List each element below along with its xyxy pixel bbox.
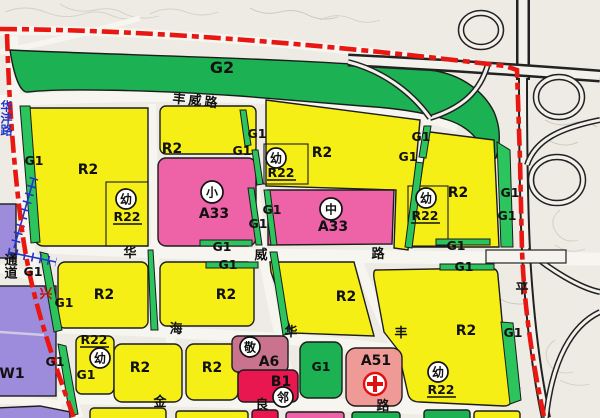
label-g1: G1 xyxy=(233,143,252,158)
road-name-huawei-lu: 路 xyxy=(371,246,385,262)
svg-text:幼: 幼 xyxy=(432,365,444,380)
label-g1: G1 xyxy=(248,126,267,141)
neighborhood-center-mark: 邻 xyxy=(273,387,293,407)
zone-partial-bottom-7 xyxy=(474,411,520,418)
label-g1: G1 xyxy=(412,129,431,144)
middle-school-mark: 中 xyxy=(320,198,342,220)
svg-text:敬: 敬 xyxy=(243,340,257,355)
zone-partial-bottom-6 xyxy=(424,410,470,418)
kindergarten-mark: 幼 xyxy=(428,362,448,382)
label-r2: R2 xyxy=(312,145,333,161)
kindergarten-mark: 幼 xyxy=(90,348,110,368)
label-g1: G1 xyxy=(455,259,474,274)
road-name-liang: 良 xyxy=(255,397,268,413)
label-r2: R2 xyxy=(216,287,237,303)
label-g1: G1 xyxy=(447,238,466,253)
label-g1: G1 xyxy=(77,367,96,382)
label-r2: R2 xyxy=(448,185,469,201)
svg-text:邻: 邻 xyxy=(276,390,289,405)
label-g1: G1 xyxy=(46,354,65,369)
label-r22: R22 xyxy=(427,382,454,397)
label-w1: W1 xyxy=(0,366,25,382)
elderly-care-mark: 敬 xyxy=(240,337,260,357)
road-name-ping: 平 xyxy=(515,282,528,297)
label-r2: R2 xyxy=(456,323,477,339)
label-g1: G1 xyxy=(219,257,238,272)
road-name-feng-vertical: 丰 xyxy=(394,325,407,341)
svg-text:幼: 幼 xyxy=(270,151,282,166)
map-canvas: G2 R2 R2 R2 R2 R2 R2 R2 R2 R2 R2 G1 G1 G… xyxy=(0,0,600,418)
road-name-hai: 海 xyxy=(169,321,182,337)
kindergarten-mark: 幼 xyxy=(416,188,436,208)
label-g1: G1 xyxy=(213,239,232,254)
road-name-xing: 兴 xyxy=(39,286,52,302)
label-a33: A33 xyxy=(199,206,229,222)
kindergarten-mark: 幼 xyxy=(266,148,286,168)
zoning-map: G2 R2 R2 R2 R2 R2 R2 R2 R2 R2 R2 G1 G1 G… xyxy=(0,0,600,418)
label-g1: G1 xyxy=(399,149,418,164)
label-g1: G1 xyxy=(504,325,523,340)
label-a51: A51 xyxy=(361,353,391,369)
label-g1: G1 xyxy=(501,185,520,200)
hospital-cross-icon xyxy=(364,373,386,395)
label-r2: R2 xyxy=(202,360,223,376)
label-g1: G1 xyxy=(498,208,517,223)
svg-text:中: 中 xyxy=(325,202,337,217)
label-r22: R22 xyxy=(80,332,107,347)
zone-partial-bottom-4 xyxy=(286,412,344,418)
label-g1: G1 xyxy=(263,202,282,217)
svg-text:幼: 幼 xyxy=(120,192,132,207)
label-g1: G1 xyxy=(25,153,44,168)
zone-r2-mid-2 xyxy=(160,262,254,326)
label-r2: R2 xyxy=(130,360,151,376)
zone-partial-bottom-2 xyxy=(176,411,248,418)
label-r2: R2 xyxy=(336,289,357,305)
label-g1: G1 xyxy=(55,295,74,310)
label-b1: B1 xyxy=(271,374,291,390)
label-g2: G2 xyxy=(210,58,234,77)
road-name-huawei-wei: 威 xyxy=(254,247,267,263)
road-name-huawei-hua: 华 xyxy=(123,245,136,261)
svg-text:小: 小 xyxy=(206,185,218,200)
label-r2: R2 xyxy=(162,141,183,157)
kindergarten-mark: 幼 xyxy=(116,189,136,209)
label-g1: G1 xyxy=(24,264,43,279)
road-name-left-vertical: 华沣路 xyxy=(0,99,13,137)
label-r22: R22 xyxy=(113,209,140,224)
road-name-jin: 金 xyxy=(152,394,167,410)
label-r2: R2 xyxy=(94,287,115,303)
overpass-bridge xyxy=(486,250,566,263)
label-g1: G1 xyxy=(312,359,331,374)
svg-text:幼: 幼 xyxy=(420,191,432,206)
road-name-lu: 路 xyxy=(376,398,390,414)
label-a6: A6 xyxy=(259,354,280,370)
svg-text:幼: 幼 xyxy=(94,351,106,366)
primary-school-mark: 小 xyxy=(201,181,223,203)
corridor-label: 通道 xyxy=(2,252,18,280)
road-name-hua-vertical: 华 xyxy=(284,324,297,340)
label-r2: R2 xyxy=(78,162,99,178)
label-a33: A33 xyxy=(318,219,348,235)
label-g1: G1 xyxy=(249,216,268,231)
label-r22: R22 xyxy=(411,208,438,223)
zone-w1-upper xyxy=(0,204,16,258)
